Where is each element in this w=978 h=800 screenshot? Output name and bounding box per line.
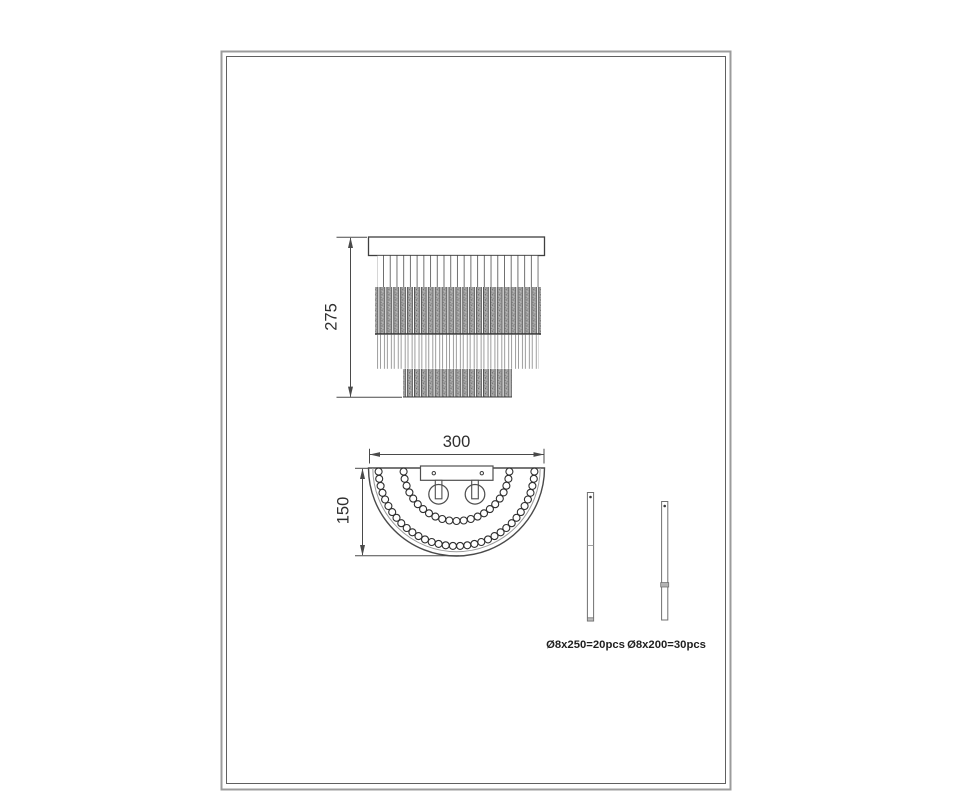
dimension-width: 300 bbox=[370, 433, 545, 464]
bead bbox=[446, 517, 453, 524]
top-view bbox=[369, 466, 545, 556]
socket-stem-left bbox=[435, 480, 442, 499]
bead bbox=[435, 540, 442, 547]
bead bbox=[500, 489, 507, 496]
arrow-right-icon bbox=[534, 452, 545, 457]
bead bbox=[527, 489, 534, 496]
rod-connector bbox=[661, 583, 669, 587]
bead bbox=[464, 542, 471, 549]
arrow-down-icon bbox=[348, 387, 353, 398]
glass-rod-250 bbox=[587, 493, 593, 622]
bead bbox=[530, 475, 537, 482]
rod-hole bbox=[663, 505, 666, 508]
bracket-hole-right bbox=[480, 472, 483, 475]
rod-detail-250: Ø8x250=20pcs bbox=[546, 493, 625, 652]
frame-outer-border bbox=[222, 52, 731, 790]
bead bbox=[376, 475, 383, 482]
dimension-label-height: 275 bbox=[323, 303, 341, 331]
bead bbox=[442, 542, 449, 549]
bead bbox=[521, 503, 528, 510]
glass-rod-200 bbox=[662, 502, 668, 621]
bead bbox=[382, 496, 389, 503]
rod-spec-label-200: Ø8x200=30pcs bbox=[627, 639, 706, 651]
arrow-down-icon bbox=[360, 545, 365, 556]
bead bbox=[449, 542, 456, 549]
crystal-rod-band-tier1 bbox=[375, 287, 541, 334]
bead bbox=[467, 516, 474, 523]
bead bbox=[400, 468, 407, 475]
bead bbox=[375, 468, 382, 475]
bead bbox=[503, 482, 510, 489]
rod-end-cap bbox=[587, 618, 593, 621]
bead bbox=[379, 489, 386, 496]
bead bbox=[432, 513, 439, 520]
rod-hole bbox=[589, 496, 592, 499]
rod-spec-label-250: Ø8x250=20pcs bbox=[546, 639, 625, 651]
arrow-left-icon bbox=[370, 452, 381, 457]
bead bbox=[485, 536, 492, 543]
bead bbox=[453, 518, 460, 525]
bead bbox=[377, 482, 384, 489]
dimension-label-depth: 150 bbox=[335, 497, 353, 525]
bead bbox=[531, 468, 538, 475]
bead bbox=[506, 468, 513, 475]
drawing-frame bbox=[222, 52, 731, 790]
bead bbox=[422, 536, 429, 543]
bead bbox=[460, 517, 467, 524]
arrow-up-icon bbox=[348, 237, 353, 248]
canopy-plate bbox=[369, 237, 545, 256]
front-view bbox=[369, 237, 545, 397]
bead bbox=[529, 482, 536, 489]
frame-inner-border bbox=[227, 57, 726, 784]
bead bbox=[524, 496, 531, 503]
arrow-up-icon bbox=[360, 468, 365, 479]
drawing-page: 275 300 150 Ø bbox=[0, 0, 978, 800]
bead bbox=[471, 540, 478, 547]
bead bbox=[401, 475, 408, 482]
bead bbox=[415, 533, 422, 540]
socket-stem-right bbox=[472, 480, 479, 499]
bead bbox=[478, 539, 485, 546]
bracket-hole-left bbox=[432, 472, 435, 475]
bead bbox=[505, 475, 512, 482]
bead bbox=[439, 516, 446, 523]
crystal-rod-band-tier2 bbox=[403, 369, 512, 397]
bead bbox=[428, 539, 435, 546]
dimension-label-width: 300 bbox=[443, 433, 471, 451]
clear-rod-band bbox=[377, 335, 539, 369]
hanging-wires bbox=[377, 256, 539, 287]
bead bbox=[403, 482, 410, 489]
bead bbox=[457, 542, 464, 549]
rod-detail-200: Ø8x200=30pcs bbox=[627, 502, 706, 652]
technical-drawing: 275 300 150 Ø bbox=[0, 0, 978, 800]
